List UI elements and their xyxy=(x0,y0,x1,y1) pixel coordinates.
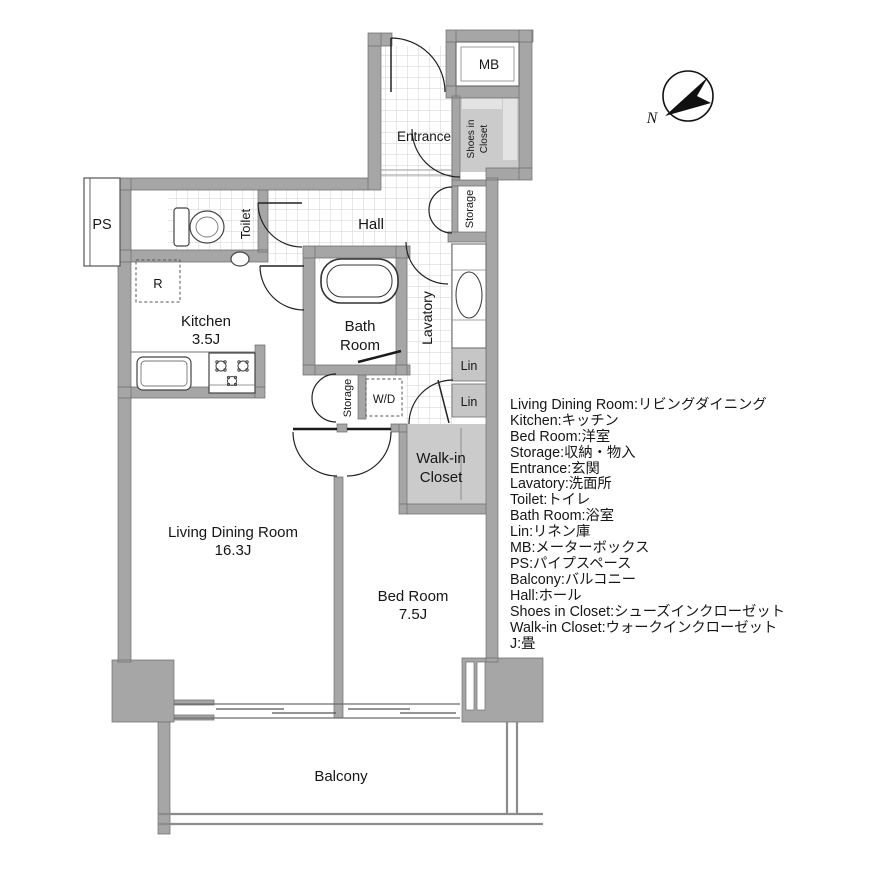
legend-line: PS:パイプスペース xyxy=(510,555,631,572)
bedroom-size: 7.5J xyxy=(399,606,427,623)
legend-line: MB:メーターボックス xyxy=(510,539,649,556)
legend-line: Shoes in Closet:シューズインクローゼット xyxy=(510,603,785,620)
legend-line: Kitchen:キッチン xyxy=(510,413,619,429)
walk-in-closet-label: Walk-in xyxy=(416,450,465,467)
bedroom-label: Bed Room xyxy=(378,588,449,605)
floor-plan-drawing: Living Dining Room 16.3J Bed Room 7.5J K… xyxy=(0,0,872,872)
legend-line: Bed Room:洋室 xyxy=(510,428,610,445)
kitchen-size: 3.5J xyxy=(192,331,220,348)
kitchen-label: Kitchen xyxy=(181,313,231,330)
hall-label: Hall xyxy=(358,216,384,233)
wash-basin xyxy=(456,272,482,318)
entrance-label: Entrance xyxy=(397,129,451,144)
legend-line: Balcony:バルコニー xyxy=(510,572,636,588)
legend-line: Lavatory:洗面所 xyxy=(510,475,612,492)
legend-line: J:畳 xyxy=(510,636,535,652)
linen-lower-label: Lin xyxy=(461,395,478,409)
balcony-windows xyxy=(174,704,460,718)
pipe-space-label: PS xyxy=(92,217,111,233)
legend-line: Storage:収納・物入 xyxy=(510,444,636,461)
toilet-bowl xyxy=(190,211,224,243)
legend-line: Lin:リネン庫 xyxy=(510,523,590,540)
fixed-window xyxy=(477,662,485,710)
kitchen-door xyxy=(260,266,304,310)
living-room-door xyxy=(293,429,337,476)
shoes-closet-shelf xyxy=(462,98,502,109)
bathroom-label: Room xyxy=(340,337,380,354)
mid-storage-doors xyxy=(312,374,336,422)
walk-in-closet-label: Closet xyxy=(420,469,463,486)
shoes-closet-shelf xyxy=(503,98,517,160)
legend-line: Entrance:玄関 xyxy=(510,460,600,477)
meter-box-label: MB xyxy=(479,57,499,72)
shoes-closet-label: Closet xyxy=(479,125,490,154)
legend-line: Walk-in Closet:ウォークインクローゼット xyxy=(510,619,777,636)
lavatory-label: Lavatory xyxy=(419,291,435,345)
toilet-hand-basin xyxy=(231,252,249,266)
living-room-label: Living Dining Room xyxy=(168,524,298,541)
bedroom-door xyxy=(347,429,391,476)
fixed-window xyxy=(466,662,474,710)
balcony-label: Balcony xyxy=(314,768,368,785)
bathroom-label: Bath xyxy=(345,318,376,335)
refrigerator-label: R xyxy=(153,276,162,291)
living-room-size: 16.3J xyxy=(215,542,252,559)
shoes-closet-label: Shoes in xyxy=(466,120,477,159)
compass-needle xyxy=(665,77,711,116)
floor-plan-page: Living Dining Room 16.3J Bed Room 7.5J K… xyxy=(0,0,872,872)
hall-storage-label: Storage xyxy=(464,190,476,229)
stove xyxy=(209,353,255,393)
legend-line: Living Dining Room:リビングダイニング xyxy=(510,396,767,413)
washer-dryer-label: W/D xyxy=(373,394,395,406)
toilet-tank xyxy=(174,208,189,246)
legend-line: Toilet:トイレ xyxy=(510,492,590,508)
compass-north-label: N xyxy=(646,110,659,127)
legend-line: Hall:ホール xyxy=(510,588,582,604)
toilet-label: Toilet xyxy=(238,208,253,239)
bathtub xyxy=(321,259,398,303)
legend: Living Dining Room:リビングダイニング Kitchen:キッチ… xyxy=(510,396,785,652)
kitchen-sink xyxy=(137,357,191,390)
mid-storage-label: Storage xyxy=(342,379,354,418)
linen-upper-label: Lin xyxy=(461,359,478,373)
compass-icon: N xyxy=(646,71,713,127)
legend-line: Bath Room:浴室 xyxy=(510,507,614,524)
